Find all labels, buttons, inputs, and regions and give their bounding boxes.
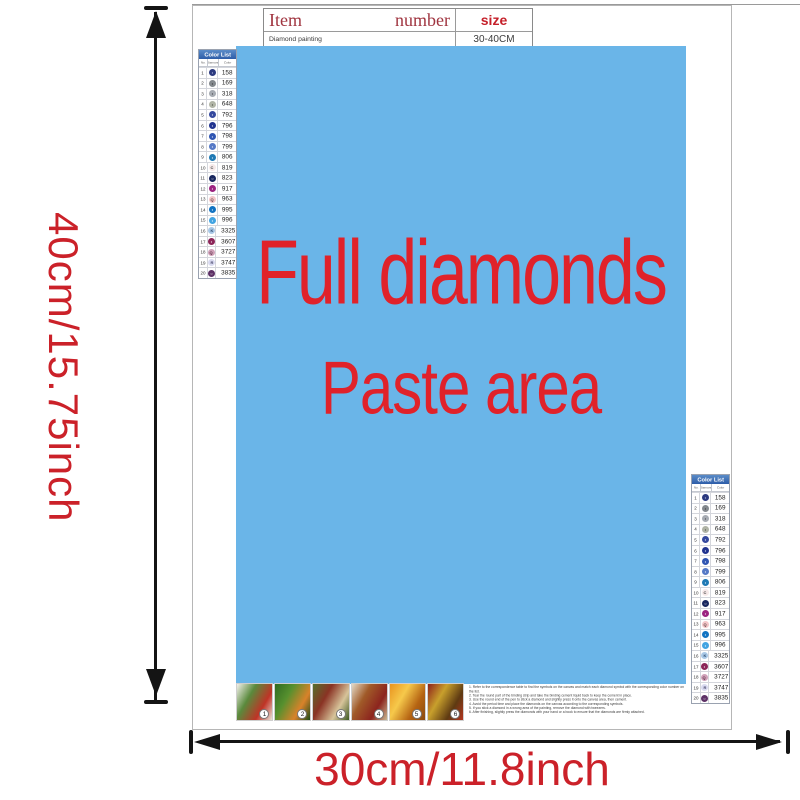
diamond-symbol-icon: • <box>700 514 710 524</box>
diamond-symbol-icon: • <box>700 556 710 566</box>
color-code: 819 <box>218 163 236 173</box>
color-row: 13Q963 <box>199 194 236 205</box>
size-value: 30-40CM <box>473 34 514 45</box>
canvas-sheet: Item number size Diamond painting 30-40C… <box>192 5 732 730</box>
col-color: Color <box>712 484 729 491</box>
color-row-number: 2 <box>199 79 207 89</box>
color-row: 20○3835 <box>199 267 236 278</box>
item-label: Item <box>269 10 302 31</box>
item-table-header-row: Item number size <box>264 9 532 32</box>
instruction-line: 6. After finishing, slightly press the d… <box>469 710 687 714</box>
color-row: 1•158 <box>692 492 729 503</box>
color-row: 14•995 <box>692 629 729 640</box>
color-row: 16K3325 <box>199 225 236 236</box>
color-code: 796 <box>711 546 729 556</box>
color-row-number: 3 <box>199 89 207 99</box>
color-row-number: 5 <box>199 110 207 120</box>
color-row: 13Q963 <box>692 619 729 630</box>
color-row-number: 14 <box>692 630 701 640</box>
diamond-symbol-icon: R <box>701 683 709 693</box>
color-code: 3835 <box>709 693 733 703</box>
color-list-left: Color List No. Diamond Color 1•1582•1693… <box>198 49 237 279</box>
color-list-title: Color List <box>697 476 724 482</box>
item-number-header-cell: Item number <box>264 9 456 31</box>
color-row: 17•3607 <box>199 236 236 247</box>
diamond-symbol-icon: R <box>208 258 216 268</box>
color-row-number: 4 <box>199 100 207 110</box>
col-no: No. <box>199 59 208 66</box>
color-row-number: 12 <box>199 184 208 194</box>
item-info-table: Item number size Diamond painting 30-40C… <box>263 8 533 47</box>
color-list-right: Color List No. Diamond Color 1•1582•1693… <box>691 474 730 704</box>
paste-area-title-line2: Paste area <box>236 351 686 426</box>
color-row: 8•799 <box>199 141 236 152</box>
col-no: No. <box>692 484 701 491</box>
color-code: 158 <box>711 493 729 503</box>
color-row-number: 9 <box>199 152 207 162</box>
step-number-badge: 5 <box>412 709 422 719</box>
diamond-symbol-icon: • <box>700 504 710 514</box>
color-code: 963 <box>711 620 729 630</box>
color-code: 917 <box>218 184 236 194</box>
height-dimension-label: 40cm/15.75inch <box>42 212 84 523</box>
diamond-symbol-icon: • <box>701 630 711 640</box>
color-row-number: 13 <box>199 195 208 205</box>
diamond-symbol-icon: • <box>208 205 218 215</box>
step-thumbnail: 6 <box>427 683 464 721</box>
diamond-symbol-icon: • <box>207 121 217 131</box>
color-code: 819 <box>711 588 729 598</box>
diamond-symbol-icon: Q <box>208 195 218 205</box>
color-row: 11○823 <box>199 172 236 183</box>
color-row: 18Q3727 <box>199 246 236 257</box>
color-row: 12•917 <box>692 608 729 619</box>
color-code: 995 <box>218 205 236 215</box>
color-row: 7•798 <box>692 555 729 566</box>
diamond-symbol-icon: • <box>700 525 710 535</box>
color-code: 995 <box>711 630 729 640</box>
color-list-title-bar: Color List <box>199 50 236 59</box>
color-row: 6•796 <box>199 120 236 131</box>
step-number-badge: 3 <box>336 709 346 719</box>
color-row: 10C819 <box>692 587 729 598</box>
color-row-number: 19 <box>692 683 701 693</box>
color-row: 15•996 <box>199 215 236 226</box>
diamond-symbol-icon: • <box>700 493 710 503</box>
color-code: 996 <box>218 216 236 226</box>
color-row: 8•799 <box>692 566 729 577</box>
color-row: 10C819 <box>199 162 236 173</box>
color-code: 318 <box>218 89 236 99</box>
diamond-symbol-icon: • <box>207 131 217 141</box>
color-row-number: 3 <box>692 514 700 524</box>
diamond-symbol-icon: • <box>207 89 217 99</box>
step-thumbnail: 5 <box>389 683 426 721</box>
color-row: 5•792 <box>692 534 729 545</box>
step-thumbnail: 1 <box>236 683 273 721</box>
color-code: 3727 <box>216 247 240 257</box>
color-row-number: 15 <box>692 641 701 651</box>
col-color: Color <box>219 59 236 66</box>
color-row-number: 18 <box>199 247 208 257</box>
diamond-symbol-icon: C <box>208 163 218 173</box>
step-thumbnail: 3 <box>312 683 349 721</box>
color-row: 2•169 <box>199 78 236 89</box>
color-row-number: 5 <box>692 535 700 545</box>
diamond-symbol-icon: • <box>207 100 217 110</box>
diamond-symbol-icon: K <box>208 226 216 236</box>
color-row: 19R3747 <box>692 682 729 693</box>
color-row: 6•796 <box>692 545 729 556</box>
color-code: 3727 <box>709 672 733 682</box>
paste-area: Full diamonds Paste area <box>236 46 686 684</box>
color-code: 799 <box>711 567 729 577</box>
diamond-symbol-icon: • <box>208 184 218 194</box>
color-row: 17•3607 <box>692 661 729 672</box>
color-row-number: 6 <box>199 121 207 131</box>
color-code: 806 <box>711 577 729 587</box>
diamond-symbol-icon: Q <box>701 620 711 630</box>
paste-area-title-line1: Full diamonds <box>236 227 686 318</box>
color-code: 648 <box>218 100 236 110</box>
color-code: 963 <box>218 195 236 205</box>
color-code: 169 <box>218 79 236 89</box>
instructions-text: 1. Refer to the correspondence table to … <box>469 685 687 714</box>
color-code: 3747 <box>709 683 733 693</box>
color-row-number: 8 <box>199 142 207 152</box>
color-code: 996 <box>711 641 729 651</box>
height-arrow-down-head <box>146 669 166 696</box>
product-name-cell: Diamond painting <box>264 32 456 46</box>
color-code: 318 <box>711 514 729 524</box>
color-code: 158 <box>218 68 236 78</box>
step-number-badge: 4 <box>374 709 384 719</box>
color-row: 20○3835 <box>692 692 729 703</box>
color-row: 3•318 <box>199 88 236 99</box>
color-row-number: 19 <box>199 258 208 268</box>
color-row-number: 7 <box>199 131 207 141</box>
color-row-number: 7 <box>692 556 700 566</box>
diamond-symbol-icon: • <box>207 110 217 120</box>
color-row-number: 11 <box>692 598 701 608</box>
diamond-symbol-icon: • <box>208 237 216 247</box>
instruction-line: 1. Refer to the correspondence table to … <box>469 685 687 693</box>
diamond-symbol-icon: Q <box>701 672 709 682</box>
step-number-badge: 2 <box>297 709 307 719</box>
color-code: 823 <box>711 598 729 608</box>
color-row-number: 16 <box>692 651 701 661</box>
diamond-symbol-icon: • <box>207 68 217 78</box>
color-row-number: 4 <box>692 525 700 535</box>
color-code: 798 <box>218 131 236 141</box>
color-row-number: 13 <box>692 620 701 630</box>
width-arrow-right-cap <box>786 730 790 754</box>
color-code: 792 <box>711 535 729 545</box>
color-row-number: 16 <box>199 226 208 236</box>
color-row-number: 8 <box>692 567 700 577</box>
diamond-symbol-icon: • <box>700 567 710 577</box>
diamond-symbol-icon: • <box>207 152 217 162</box>
size-value-cell: 30-40CM <box>456 32 532 46</box>
size-header-cell: size <box>456 9 532 31</box>
number-label: number <box>395 10 450 31</box>
color-code: 799 <box>218 142 236 152</box>
diamond-symbol-icon: ○ <box>701 693 709 703</box>
color-row: 16K3325 <box>692 650 729 661</box>
color-row-number: 18 <box>692 672 701 682</box>
step-number-badge: 6 <box>450 709 460 719</box>
color-row: 19R3747 <box>199 257 236 268</box>
color-code: 796 <box>218 121 236 131</box>
color-list-title: Color List <box>204 51 231 57</box>
width-arrow-right-head <box>756 734 782 750</box>
color-list-title-bar: Color List <box>692 475 729 484</box>
color-row: 5•792 <box>199 109 236 120</box>
color-row-number: 1 <box>199 68 207 78</box>
diamond-symbol-icon: ○ <box>208 173 218 183</box>
color-row: 9•806 <box>692 576 729 587</box>
color-row: 18Q3727 <box>692 671 729 682</box>
color-row: 4•648 <box>692 524 729 535</box>
color-code: 3325 <box>216 226 240 236</box>
color-row-number: 10 <box>692 588 701 598</box>
color-code: 917 <box>711 609 729 619</box>
color-row: 2•169 <box>692 503 729 514</box>
color-code: 3607 <box>709 662 733 672</box>
color-row: 7•798 <box>199 130 236 141</box>
diamond-symbol-icon: • <box>207 79 217 89</box>
color-row: 14•995 <box>199 204 236 215</box>
color-row-number: 17 <box>692 662 701 672</box>
col-diamond: Diamond <box>208 59 219 66</box>
diamond-symbol-icon: • <box>208 216 218 226</box>
diamond-symbol-icon: C <box>701 588 711 598</box>
color-list-column-header: No. Diamond Color <box>199 59 236 67</box>
color-row: 9•806 <box>199 151 236 162</box>
item-table-value-row: Diamond painting 30-40CM <box>264 32 532 46</box>
step-thumbnail: 2 <box>274 683 311 721</box>
width-dimension-label: 30cm/11.8inch <box>192 746 732 792</box>
color-code: 648 <box>711 525 729 535</box>
color-row: 15•996 <box>692 640 729 651</box>
step-number-badge: 1 <box>259 709 269 719</box>
col-diamond: Diamond <box>701 484 712 491</box>
color-row: 4•648 <box>199 99 236 110</box>
color-code: 3835 <box>216 268 240 278</box>
color-row: 3•318 <box>692 513 729 524</box>
diamond-symbol-icon: K <box>701 651 709 661</box>
diamond-symbol-icon: ○ <box>701 598 711 608</box>
diamond-symbol-icon: Q <box>208 247 216 257</box>
color-row-number: 20 <box>692 693 701 703</box>
diamond-symbol-icon: • <box>700 535 710 545</box>
color-row: 11○823 <box>692 597 729 608</box>
color-row-number: 1 <box>692 493 700 503</box>
height-arrow-bottom-cap <box>144 700 168 704</box>
diamond-symbol-icon: • <box>701 662 709 672</box>
color-code: 3747 <box>216 258 240 268</box>
diamond-symbol-icon: • <box>207 142 217 152</box>
color-row-number: 6 <box>692 546 700 556</box>
color-row-number: 12 <box>692 609 701 619</box>
color-row-number: 10 <box>199 163 208 173</box>
color-code: 823 <box>218 173 236 183</box>
color-row-number: 20 <box>199 268 208 278</box>
color-row-number: 11 <box>199 173 208 183</box>
diamond-symbol-icon: • <box>700 546 710 556</box>
color-code: 169 <box>711 504 729 514</box>
height-arrow-top-cap <box>144 6 168 10</box>
product-name: Diamond painting <box>269 35 322 42</box>
color-row-number: 2 <box>692 504 700 514</box>
diamond-symbol-icon: • <box>701 641 711 651</box>
step-thumbnail: 4 <box>351 683 388 721</box>
color-row: 12•917 <box>199 183 236 194</box>
color-row-number: 9 <box>692 577 700 587</box>
color-code: 3325 <box>709 651 733 661</box>
color-row-number: 15 <box>199 216 208 226</box>
color-code: 806 <box>218 152 236 162</box>
instructions-block: 1. Refer to the correspondence table to … <box>469 685 687 721</box>
diamond-symbol-icon: • <box>700 577 710 587</box>
diamond-symbol-icon: ○ <box>208 268 216 278</box>
steps-strip: 123456 <box>236 683 464 719</box>
color-code: 3607 <box>216 237 240 247</box>
color-list-column-header: No. Diamond Color <box>692 484 729 492</box>
color-code: 792 <box>218 110 236 120</box>
height-arrow-line <box>154 12 157 700</box>
diamond-symbol-icon: • <box>701 609 711 619</box>
color-row-number: 14 <box>199 205 208 215</box>
color-row-number: 17 <box>199 237 208 247</box>
color-code: 798 <box>711 556 729 566</box>
color-row: 1•158 <box>199 67 236 78</box>
